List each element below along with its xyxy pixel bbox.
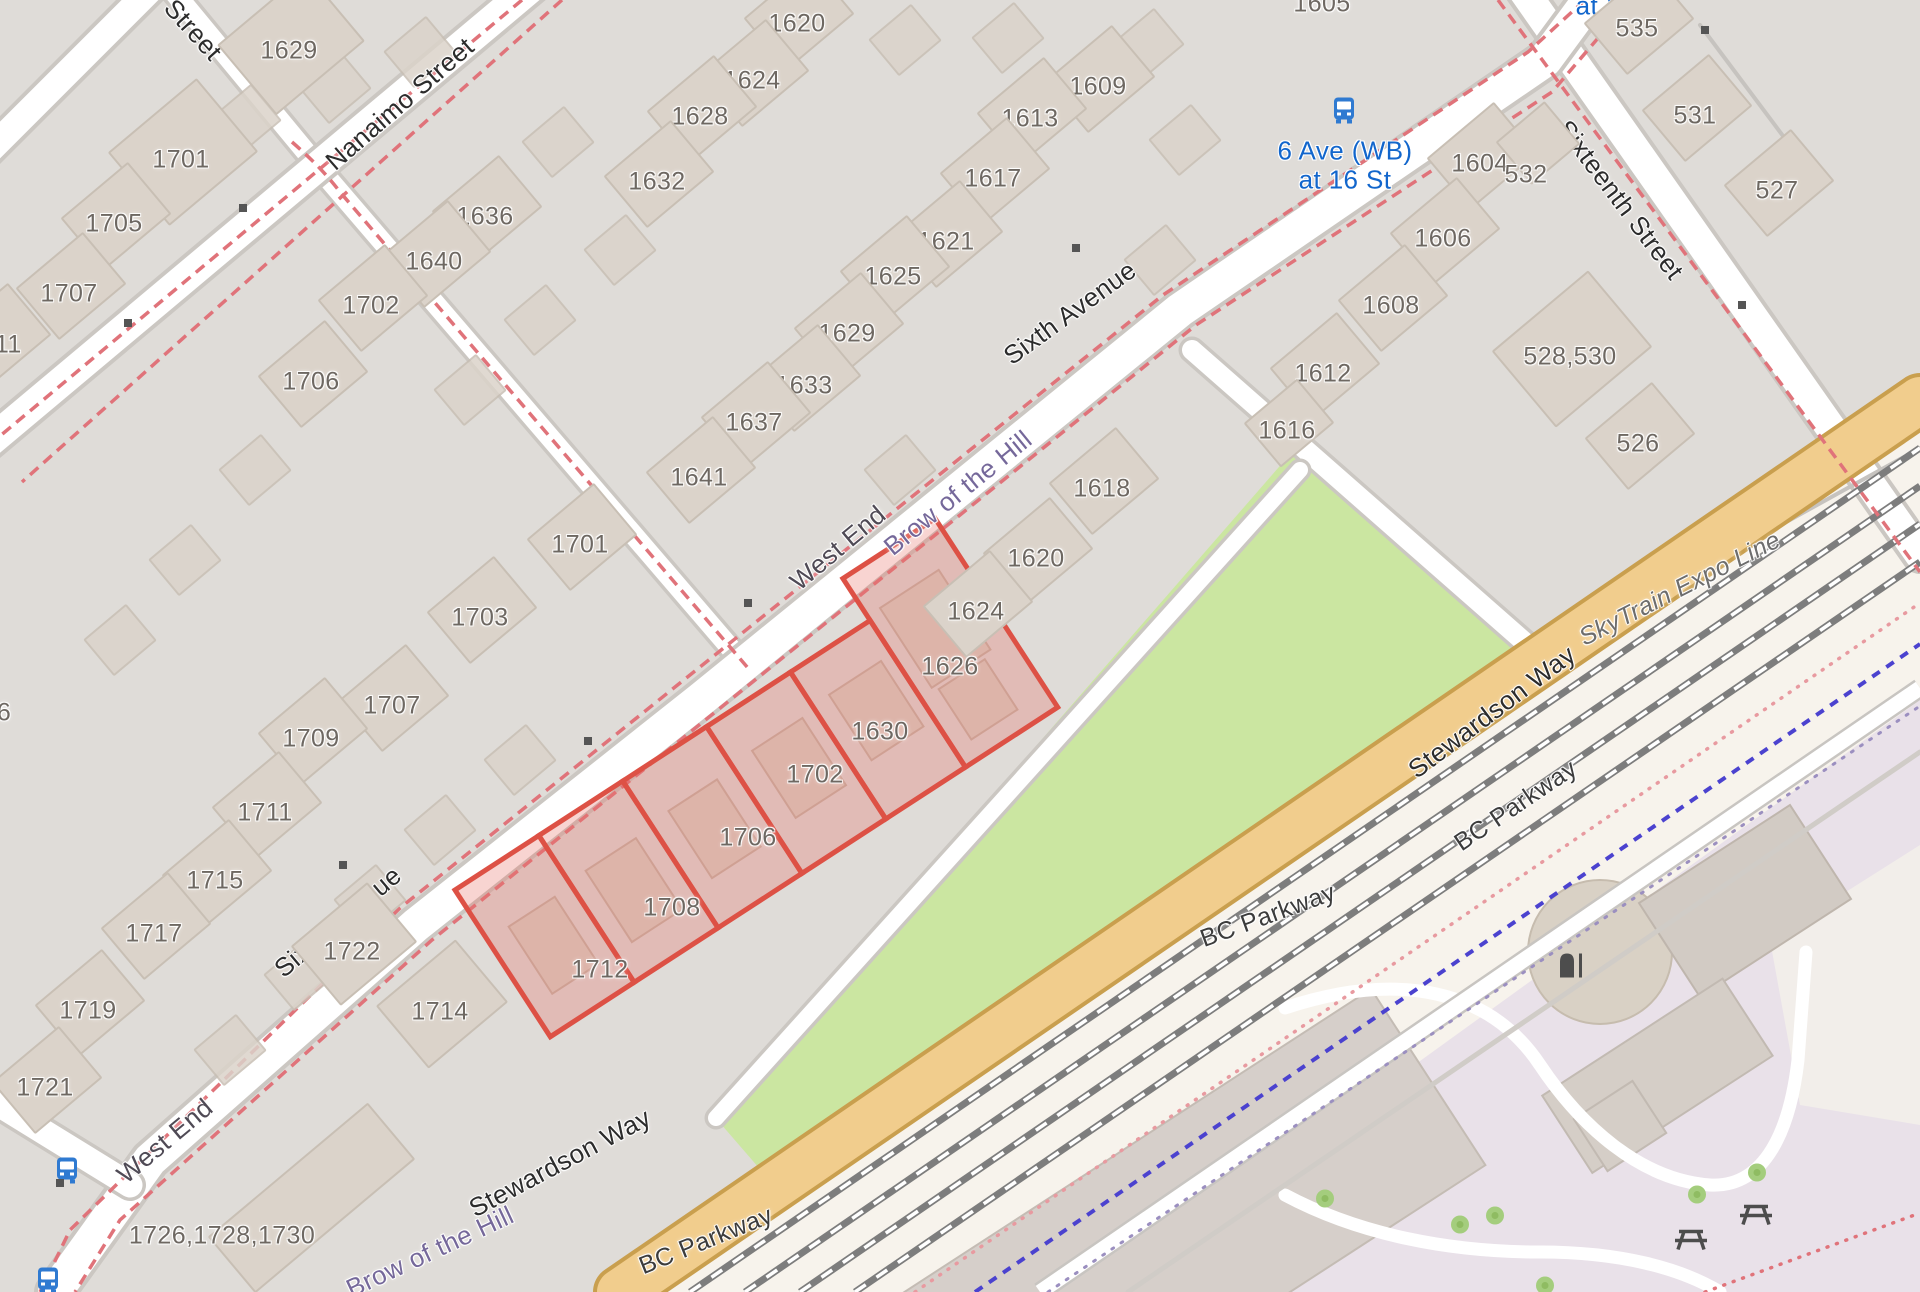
- house-number-label: 1706: [282, 368, 339, 397]
- house-number-label: 1703: [451, 604, 508, 633]
- house-number-label: 1708: [643, 894, 700, 923]
- house-number-label: 1712: [571, 956, 628, 985]
- house-number-label: 1711: [237, 799, 292, 828]
- boundary-marker-icon: [1738, 296, 1746, 314]
- map-canvas[interactable]: StreetNanaimo StreetSixth AvenueSixth Av…: [0, 0, 1920, 1292]
- boundary-marker-icon: [339, 856, 347, 874]
- transit-stop-label: 6 Ave (WB): [1277, 136, 1412, 167]
- tree-icon: [1535, 1276, 1555, 1292]
- house-number-label: 1606: [1414, 225, 1471, 254]
- house-number-label: 1616: [1258, 417, 1315, 446]
- house-number-label: 1632: [628, 168, 685, 197]
- house-number-label: 526: [1617, 430, 1660, 459]
- house-number-label: 1702: [786, 761, 843, 790]
- house-number-label: 531: [1674, 102, 1717, 131]
- house-number-label: 1707: [40, 280, 97, 309]
- house-number-label: 1709: [282, 725, 339, 754]
- house-number-label: 1626: [921, 653, 978, 682]
- house-number-label: 1711: [0, 331, 22, 360]
- boundary-marker-icon: [1072, 239, 1080, 257]
- house-number-label: 6: [0, 699, 11, 728]
- boundary-marker-icon: [239, 199, 247, 217]
- picnic-table-icon: [1738, 1199, 1774, 1234]
- monument-icon: [1557, 952, 1587, 985]
- house-number-label: 1637: [725, 409, 782, 438]
- house-number-label: 1715: [186, 867, 243, 896]
- house-number-label: 1722: [323, 938, 380, 967]
- house-number-label: 1641: [670, 464, 727, 493]
- house-number-label: 1620: [1007, 545, 1064, 574]
- boundary-marker-icon: [584, 732, 592, 750]
- picnic-table-icon: [1673, 1224, 1709, 1259]
- house-number-label: 1640: [405, 248, 462, 277]
- house-number-label: 527: [1756, 177, 1799, 206]
- tree-icon: [1315, 1189, 1335, 1214]
- house-number-label: 1717: [125, 920, 182, 949]
- house-number-label: 1702: [342, 292, 399, 321]
- boundary-marker-icon: [744, 594, 752, 612]
- boundary-marker-icon: [124, 314, 132, 332]
- house-number-label: 1707: [363, 692, 420, 721]
- house-number-label: 1629: [260, 37, 317, 66]
- house-number-label: 1705: [85, 210, 142, 239]
- house-number-label: 535: [1616, 15, 1659, 44]
- house-number-label: 1628: [671, 103, 728, 132]
- boundary-marker-icon: [56, 1174, 64, 1192]
- house-number-label: 1604: [1451, 150, 1508, 179]
- tree-icon: [1450, 1215, 1470, 1240]
- house-number-label: 1719: [59, 997, 116, 1026]
- house-number-label: 1605: [1293, 0, 1350, 19]
- house-number-label: 1612: [1294, 360, 1351, 389]
- house-number-label: 1624: [947, 598, 1004, 627]
- boundary-marker-icon: [1701, 21, 1709, 39]
- house-number-label: 1618: [1073, 475, 1130, 504]
- house-number-label: 1608: [1362, 292, 1419, 321]
- house-number-label: 1706: [719, 824, 776, 853]
- house-number-label: 1701: [152, 146, 209, 175]
- transit-stop-label: at 16 St: [1299, 165, 1392, 196]
- house-number-label: 1726,1728,1730: [129, 1222, 315, 1251]
- house-number-label: 1701: [551, 531, 608, 560]
- house-number-label: 1630: [851, 718, 908, 747]
- bus-stop-icon: [35, 1266, 61, 1292]
- house-number-label: 1714: [411, 998, 468, 1027]
- tree-icon: [1485, 1206, 1505, 1231]
- house-number-label: 1721: [16, 1074, 73, 1103]
- tree-icon: [1687, 1185, 1707, 1210]
- house-number-label: 528,530: [1523, 343, 1616, 372]
- tree-icon: [1747, 1163, 1767, 1188]
- bus-stop-icon: [1331, 96, 1357, 131]
- house-number-label: 1617: [964, 165, 1021, 194]
- house-number-label: 532: [1505, 161, 1548, 190]
